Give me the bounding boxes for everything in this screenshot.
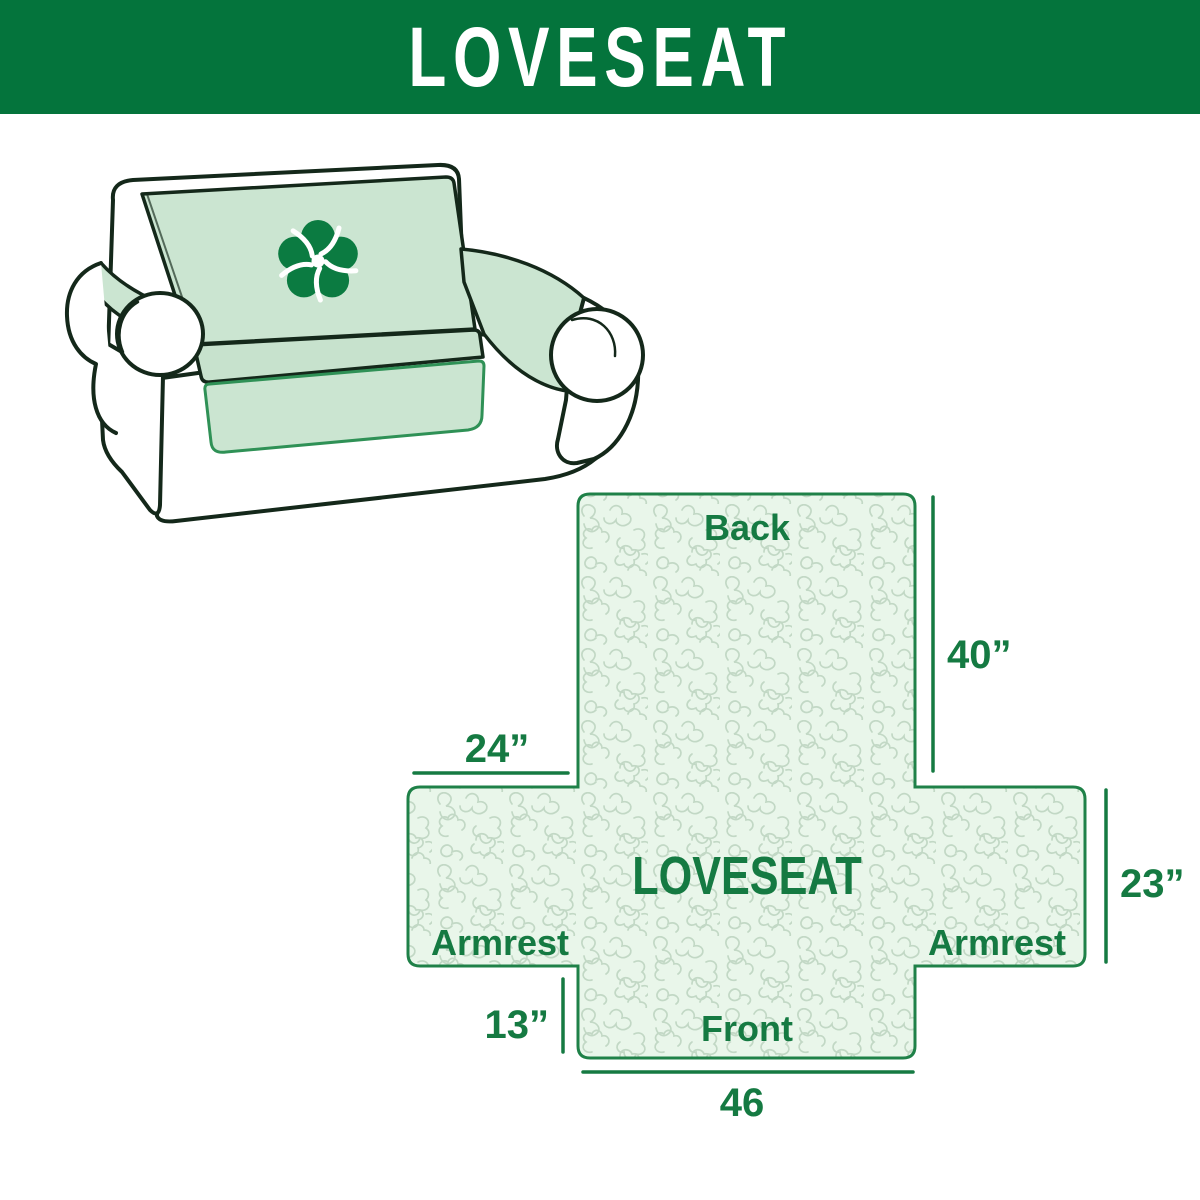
label-center-loveseat: LOVESEAT (632, 847, 862, 907)
dim-front-skirt-height: 13” (485, 1003, 550, 1047)
label-front: Front (701, 1008, 793, 1049)
page: LOVESEAT (0, 0, 1200, 1200)
sofa-right-arm-roll (551, 309, 643, 401)
cover-dimension-diagram: Back LOVESEAT Armrest Armrest Front 40” … (385, 478, 1190, 1138)
dim-back-height: 40” (947, 633, 1012, 677)
dim-front-width: 46 (720, 1081, 765, 1125)
label-armrest-right: Armrest (928, 922, 1066, 963)
sofa-left-arm-roll (117, 293, 203, 375)
dim-armrest-height: 23” (1120, 862, 1185, 906)
page-title: LOVESEAT (408, 15, 792, 99)
header-banner: LOVESEAT (0, 0, 1200, 114)
label-armrest-left: Armrest (431, 922, 569, 963)
cover-cross-shape (408, 494, 1085, 1058)
label-back: Back (704, 507, 791, 548)
dim-armrest-width: 24” (465, 727, 530, 771)
